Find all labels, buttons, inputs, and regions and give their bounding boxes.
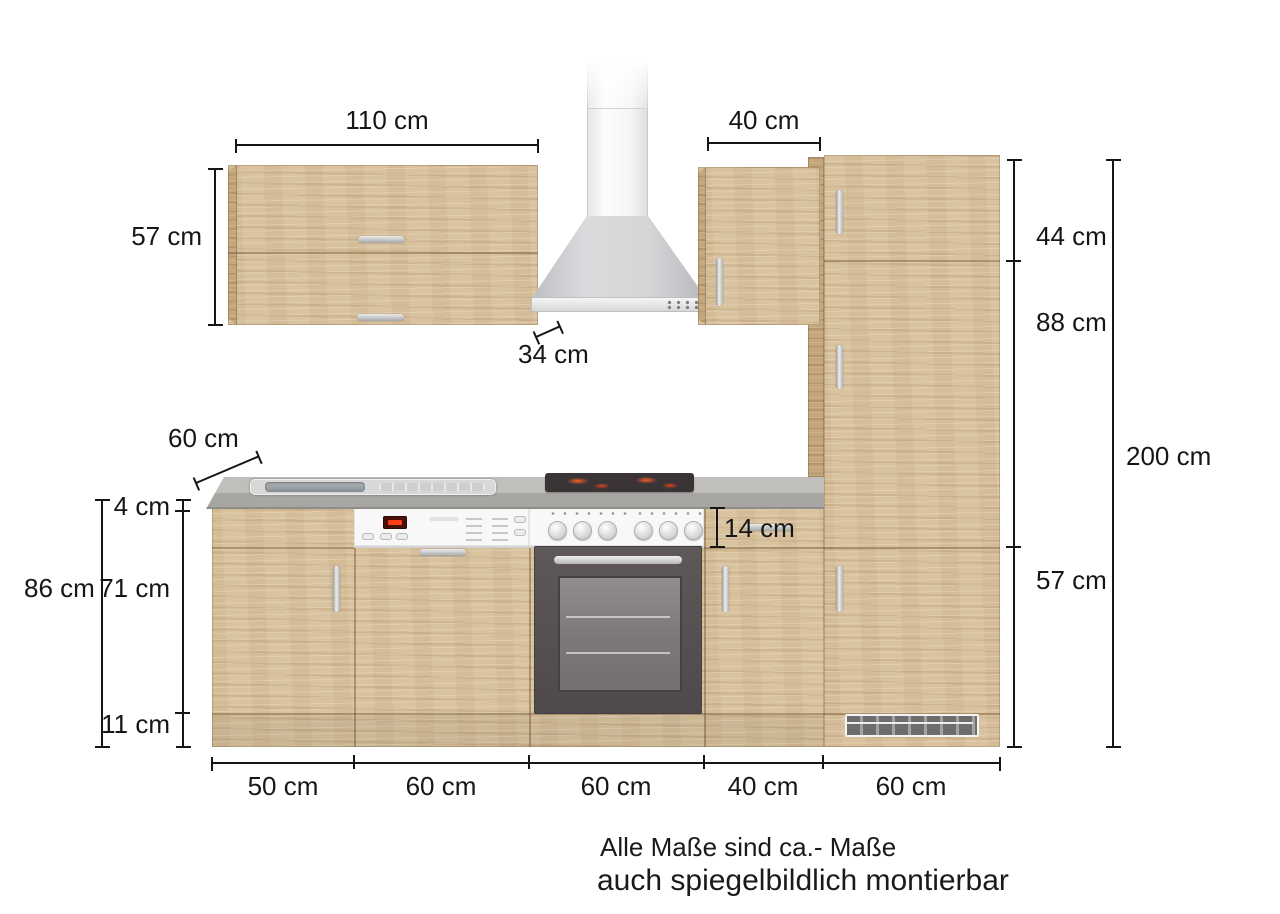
dim-label-width-60c: 60 cm — [861, 772, 961, 800]
dim-label-base-total-height: 86 cm — [24, 574, 94, 602]
wall-cabinet-110-upper-handle — [358, 236, 404, 243]
ventilation-grille — [845, 714, 979, 737]
sink-basin — [265, 482, 365, 492]
oven-panel-indicators-left — [547, 511, 627, 517]
dishwasher-program-icons-2 — [492, 514, 508, 541]
oven-rack-1 — [566, 616, 670, 618]
dim-label-plinth-height: 11 cm — [98, 710, 170, 738]
dim-tick — [175, 510, 190, 512]
dim-tick — [822, 755, 824, 769]
oven-knob-4 — [634, 521, 653, 540]
dim-label-tall-middle-door: 88 cm — [1036, 308, 1116, 336]
base-40-door-handle — [722, 566, 729, 612]
wall-cabinet-40-handle — [716, 258, 723, 306]
dim-label-wall-cabinet-height: 57 cm — [130, 222, 202, 250]
dim-line-base-widths — [212, 762, 1000, 764]
wall-cabinet-110 — [228, 165, 538, 325]
dim-line-hood-cabinet-width — [708, 142, 820, 144]
dim-label-wall-cabinet-width: 110 cm — [330, 106, 444, 134]
dishwasher-program-icons-1 — [466, 514, 482, 541]
dim-line-drawer-height — [716, 508, 718, 547]
tall-cabinet-door-seam-bottom — [824, 547, 1000, 549]
oven-door-handle — [554, 556, 682, 564]
kitchen-dimension-diagram: 110 cm 40 cm 57 cm 34 cm 60 cm 86 cm 4 c… — [0, 0, 1280, 914]
sink-cabinet-drawer-seam — [212, 547, 354, 549]
oven-panel-indicators-right — [634, 511, 704, 517]
dim-tick — [1006, 260, 1021, 262]
dishwasher-button-4 — [514, 516, 526, 523]
dim-line-total-height — [1112, 160, 1114, 747]
dim-line-wall-cabinet-height — [214, 169, 216, 325]
wall-cabinet-40 — [698, 167, 820, 325]
dim-label-worktop-thickness: 4 cm — [104, 492, 170, 520]
dim-tick — [175, 712, 190, 714]
oven-knob-3 — [598, 521, 617, 540]
tall-middle-door-handle — [836, 345, 843, 389]
oven-knob-5 — [659, 521, 678, 540]
tall-cabinet-door-seam-top — [824, 260, 1000, 262]
dim-line-wall-cabinet-width — [236, 144, 538, 146]
ventilation-grille-divider — [847, 722, 973, 724]
range-hood-base — [531, 297, 709, 312]
dim-label-width-50: 50 cm — [233, 772, 333, 800]
note-mirror-mountable: auch spiegelbildlich montierbar — [597, 864, 1009, 898]
range-hood-canopy — [532, 216, 706, 298]
dishwasher-button-2 — [380, 533, 392, 540]
oven-control-panel — [529, 508, 704, 548]
dim-label-tall-top-door: 44 cm — [1036, 222, 1116, 250]
dim-line-tall-sections — [1013, 160, 1015, 747]
dim-tick — [528, 755, 530, 769]
dim-tick — [703, 755, 705, 769]
base-module-seam-3 — [704, 507, 706, 747]
dim-tick — [353, 755, 355, 769]
note-approx-dimensions: Alle Maße sind ca.- Maße — [600, 832, 896, 863]
dim-line-base-sections — [182, 500, 184, 747]
hood-chimney — [587, 63, 648, 217]
dim-label-tall-bottom-door: 57 cm — [1036, 566, 1116, 594]
dim-label-width-60a: 60 cm — [391, 772, 491, 800]
dishwasher-door-handle — [420, 549, 466, 556]
dishwasher-button-3 — [396, 533, 408, 540]
cooktop — [545, 473, 694, 492]
plinth — [212, 715, 824, 747]
oven-rack-2 — [566, 652, 670, 654]
dim-label-worktop-depth: 60 cm — [168, 424, 234, 452]
sink-drainboard — [379, 483, 485, 491]
oven-knob-2 — [573, 521, 592, 540]
dishwasher-display-digits — [388, 520, 402, 525]
dim-label-wall-cabinet-depth: 34 cm — [518, 340, 584, 368]
sink — [250, 479, 496, 495]
dim-label-width-60b: 60 cm — [566, 772, 666, 800]
tall-cabinet — [824, 155, 1000, 747]
hood-chimney-extension — [587, 63, 648, 109]
dim-tick — [1006, 546, 1021, 548]
dim-label-hood-cabinet-width: 40 cm — [706, 106, 822, 134]
oven-window — [558, 576, 682, 692]
oven-knob-1 — [548, 521, 567, 540]
oven-door — [534, 546, 702, 714]
dishwasher-button-5 — [514, 529, 526, 536]
dim-label-width-40: 40 cm — [713, 772, 813, 800]
wall-cabinet-110-flap-seam — [228, 252, 538, 254]
sink-cabinet-door-handle — [333, 566, 340, 612]
wall-cabinet-110-side-edge — [228, 165, 237, 325]
dishwasher-button-1 — [362, 533, 374, 540]
oven-knob-6 — [684, 521, 703, 540]
dim-line-wall-cabinet-depth — [536, 326, 561, 338]
dim-label-total-height: 200 cm — [1126, 442, 1222, 470]
dim-label-base-front-height: 71 cm — [98, 574, 170, 602]
tall-top-door-handle — [836, 190, 843, 234]
dishwasher-control-panel — [354, 508, 529, 548]
dim-label-drawer-height: 14 cm — [724, 514, 804, 542]
wall-cabinet-110-lower-handle — [357, 314, 404, 321]
wall-cabinet-40-side-edge — [698, 167, 706, 325]
tall-bottom-door-handle — [836, 566, 843, 612]
dishwasher-brand-mark — [430, 517, 458, 521]
dishwasher-display — [383, 516, 407, 529]
